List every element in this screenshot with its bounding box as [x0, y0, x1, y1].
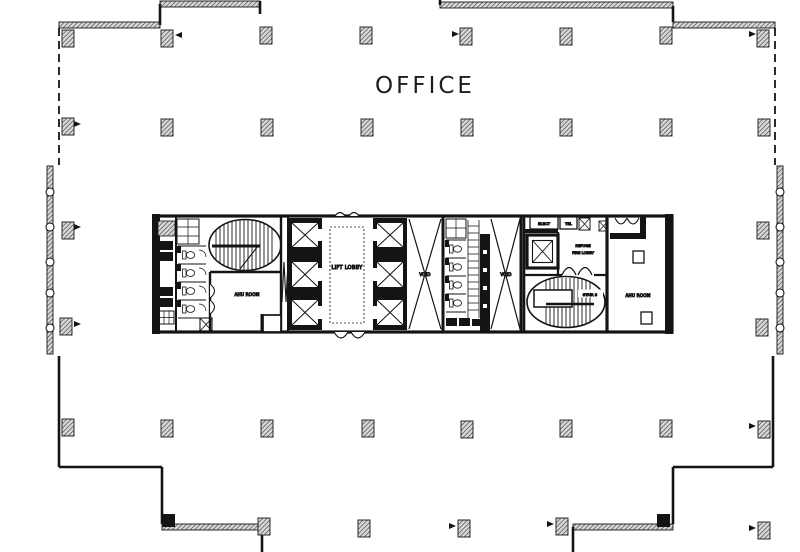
ramp-ladder: [468, 220, 479, 318]
riser-shaft: [480, 234, 490, 332]
column: [62, 30, 74, 47]
stair-3: STAIR 3: [527, 277, 605, 329]
void-right-label: VOID: [500, 272, 511, 277]
equipment-box: [633, 251, 644, 263]
elect-room-label: ELECT: [538, 221, 551, 226]
ahu-room-left: AHU ROOM: [210, 216, 281, 332]
lift-bank-1: [288, 218, 322, 330]
double-door-swing: [562, 268, 592, 276]
lift-lobby: LIFT LOBBY: [330, 213, 365, 339]
refuge-lobby-label-line1: REFUGE: [575, 243, 591, 248]
fireman-lift: [527, 235, 558, 268]
refuge-fire-lobby: REFUGE FIRE LOBBY: [524, 243, 607, 275]
wall-corner-block: [162, 514, 175, 527]
floor-plan-page: OFFICE: [0, 0, 800, 552]
toilet-block-right: [445, 219, 490, 332]
office-area-label: OFFICE: [375, 73, 475, 99]
void-left: VOID: [409, 216, 443, 332]
wall-corner-block: [657, 514, 670, 527]
stair-3-label: STAIR 3: [583, 292, 598, 297]
lobby-door-swings: [334, 213, 365, 339]
double-door-swing: [615, 218, 639, 224]
void-left-label: VOID: [419, 272, 430, 277]
column-grid: [60, 27, 770, 539]
stair-1: [209, 220, 281, 271]
ahu-room-right: AHU ROOM: [607, 216, 652, 332]
room-tag-boxes: [446, 318, 481, 326]
floor-plan-canvas: OFFICE: [0, 0, 800, 552]
stall-door-swings: [199, 250, 206, 311]
refuge-lobby-label-line2: FIRE LOBBY: [572, 250, 595, 255]
void-right: VOID: [491, 216, 521, 332]
ahu-room-right-label: AHU ROOM: [625, 293, 650, 298]
lift-bank-2: [373, 218, 407, 330]
ahu-room-left-label: AHU ROOM: [234, 292, 259, 297]
lift-lobby-label: LIFT LOBBY: [332, 265, 364, 271]
service-core: AHU ROOM LIFT LOBBY VOID: [152, 213, 673, 339]
braced-shaft: [282, 216, 288, 332]
toilet-block-left: [158, 216, 212, 332]
tel-room-label: TEL: [564, 221, 573, 226]
equipment-box: [641, 312, 652, 324]
